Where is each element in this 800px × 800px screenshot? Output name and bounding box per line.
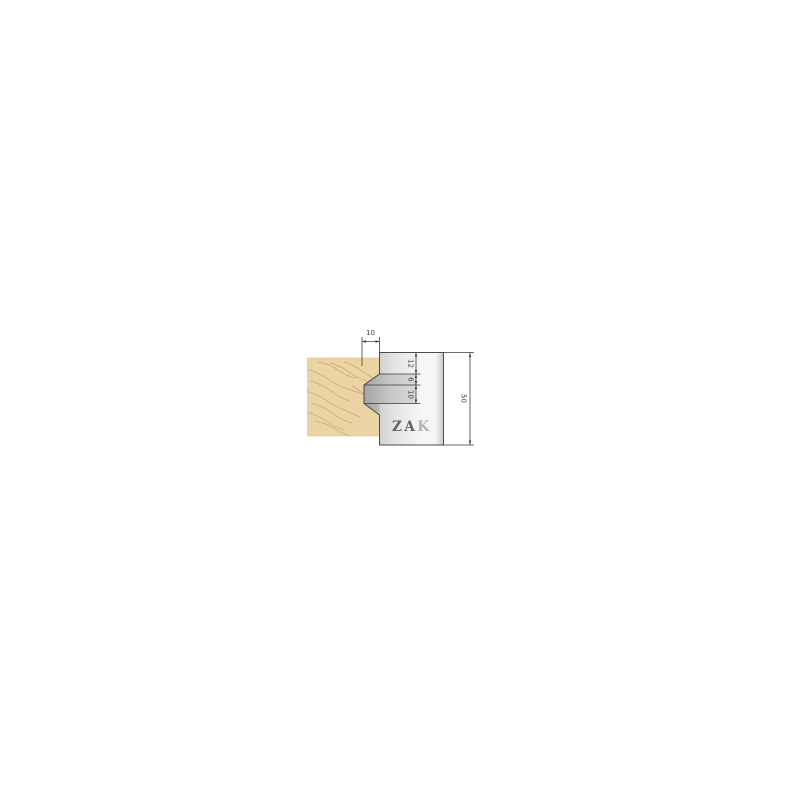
dimension-label-step2: 6 [407, 377, 415, 382]
dimension-label-top-width: 10 [366, 329, 375, 337]
zak-logo: ZAK [392, 419, 432, 435]
dimension-label-step3: 10 [407, 390, 415, 399]
dimension-label-step1: 12 [407, 359, 415, 368]
zak-logo-k: K [417, 419, 431, 435]
dimension-label-total-height: 50 [460, 394, 468, 403]
dimension-total-height: 50 [444, 353, 475, 446]
technical-drawing: 10 12 6 10 50 ZAK [0, 0, 800, 800]
page: 10 12 6 10 50 ZAK [0, 0, 800, 800]
zak-logo-za: ZA [392, 419, 417, 435]
